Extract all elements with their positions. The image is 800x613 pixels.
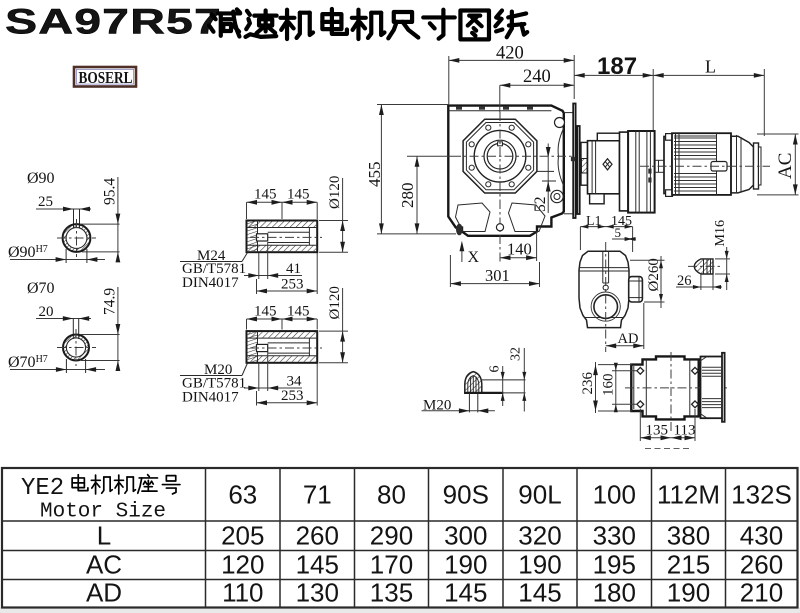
svg-text:113: 113	[674, 423, 696, 439]
svg-text:Ø260: Ø260	[646, 258, 662, 291]
svg-text:120: 120	[221, 550, 264, 580]
svg-text:6: 6	[488, 366, 503, 373]
svg-text:180: 180	[593, 578, 636, 608]
svg-text:Ø90: Ø90	[27, 170, 55, 187]
svg-text:290: 290	[370, 521, 413, 551]
svg-text:320: 320	[518, 521, 561, 551]
svg-text:20: 20	[39, 304, 54, 320]
svg-text:430: 430	[740, 521, 783, 551]
svg-text:AD: AD	[86, 578, 122, 608]
svg-text:132S: 132S	[731, 480, 792, 510]
svg-text:195: 195	[593, 550, 636, 580]
svg-text:25: 25	[38, 194, 53, 210]
svg-text:BOSERL: BOSERL	[79, 68, 133, 87]
svg-text:260: 260	[296, 521, 339, 551]
svg-text:52: 52	[532, 197, 549, 213]
svg-text:300: 300	[444, 521, 487, 551]
svg-text:330: 330	[593, 521, 636, 551]
svg-text:L: L	[705, 57, 716, 77]
svg-text:90L: 90L	[518, 480, 561, 510]
svg-text:190: 190	[518, 550, 561, 580]
svg-text:63: 63	[228, 480, 257, 510]
svg-text:41: 41	[286, 261, 301, 277]
svg-text:90S: 90S	[443, 480, 489, 510]
svg-text:DIN4017: DIN4017	[182, 275, 239, 291]
svg-text:145: 145	[287, 187, 310, 203]
svg-text:Ø120: Ø120	[327, 286, 343, 319]
svg-text:190: 190	[444, 550, 487, 580]
svg-text:AC: AC	[86, 550, 122, 580]
svg-text:71: 71	[303, 480, 332, 510]
svg-text:253: 253	[281, 388, 304, 404]
svg-text:L: L	[97, 521, 111, 551]
svg-text:240: 240	[523, 67, 551, 87]
svg-text:Ø120: Ø120	[327, 176, 343, 209]
svg-text:145: 145	[296, 550, 339, 580]
svg-text:215: 215	[667, 550, 710, 580]
svg-text:Ø70: Ø70	[27, 280, 55, 297]
svg-text:260: 260	[740, 550, 783, 580]
svg-text:280: 280	[398, 183, 417, 209]
svg-text:170: 170	[370, 550, 413, 580]
svg-text:74.9: 74.9	[102, 288, 119, 315]
svg-text:M16: M16	[713, 220, 728, 246]
svg-text:380: 380	[667, 521, 710, 551]
svg-text:YE2: YE2	[21, 475, 64, 502]
svg-text:205: 205	[221, 521, 264, 551]
svg-text:140: 140	[507, 240, 532, 259]
svg-text:SA97R57: SA97R57	[5, 2, 222, 41]
svg-text:135: 135	[370, 578, 413, 608]
svg-text:145: 145	[254, 187, 277, 203]
svg-text:253: 253	[281, 277, 304, 293]
svg-text:AC: AC	[775, 153, 796, 179]
svg-text:160: 160	[601, 374, 617, 397]
svg-text:301: 301	[485, 266, 510, 285]
svg-text:5: 5	[615, 225, 622, 240]
svg-text:130: 130	[296, 578, 339, 608]
svg-text:210: 210	[740, 578, 783, 608]
svg-text:100: 100	[593, 480, 636, 510]
svg-text:187: 187	[597, 53, 637, 80]
svg-text:DIN4017: DIN4017	[182, 390, 239, 406]
svg-text:80: 80	[377, 480, 406, 510]
svg-text:95.4: 95.4	[102, 178, 119, 205]
svg-text:190: 190	[667, 578, 710, 608]
svg-text:110: 110	[222, 578, 263, 608]
svg-text:32: 32	[509, 347, 524, 361]
svg-text:145: 145	[518, 578, 561, 608]
svg-text:145: 145	[444, 578, 487, 608]
svg-text:112M: 112M	[657, 480, 720, 510]
svg-text:X: X	[468, 249, 480, 266]
